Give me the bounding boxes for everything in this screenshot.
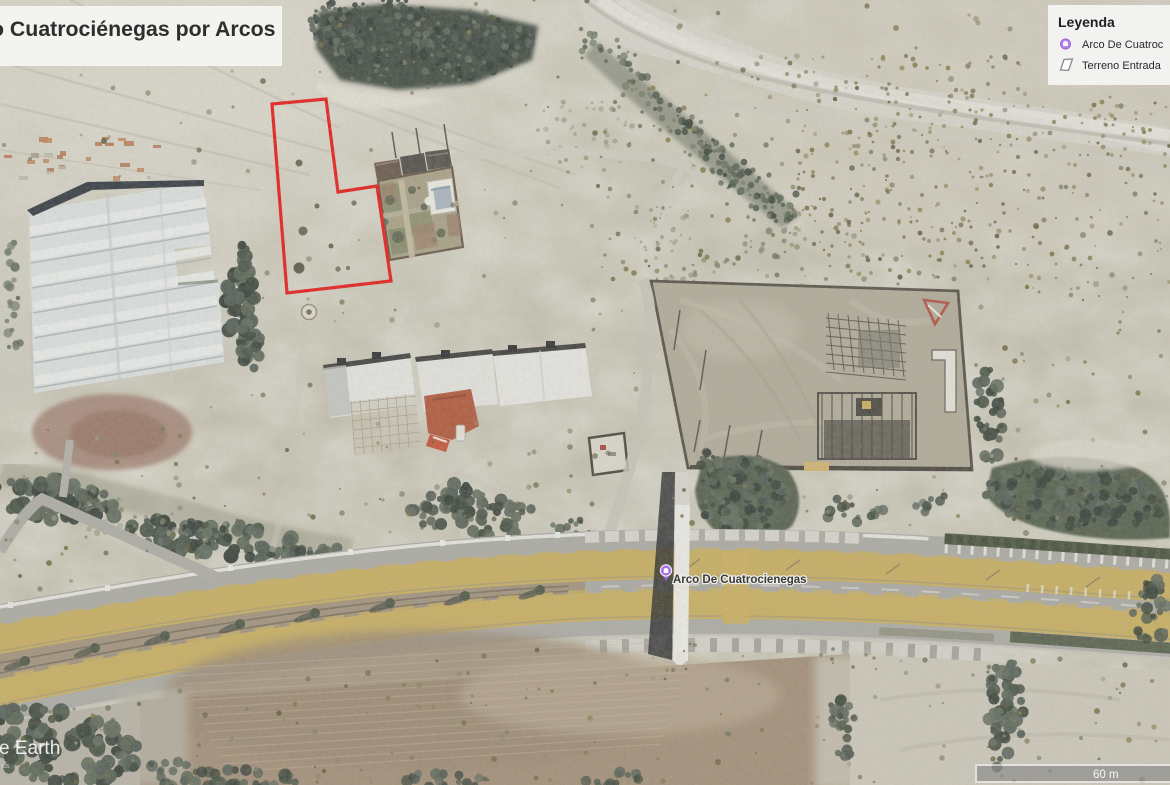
svg-text:Terreno Entrada: Terreno Entrada xyxy=(1082,60,1162,72)
svg-text:Leyenda: Leyenda xyxy=(1058,14,1115,30)
svg-text:Arco De Cuatrocienegas: Arco De Cuatrocienegas xyxy=(673,574,807,586)
svg-text:60 m: 60 m xyxy=(1093,769,1119,781)
svg-text:o Cuatrociénegas por Arcos: o Cuatrociénegas por Arcos xyxy=(0,17,275,41)
svg-text:e Earth: e Earth xyxy=(0,738,60,759)
svg-text:us: us xyxy=(2,763,10,770)
svg-text:Arco De Cuatroc: Arco De Cuatroc xyxy=(1082,39,1164,51)
